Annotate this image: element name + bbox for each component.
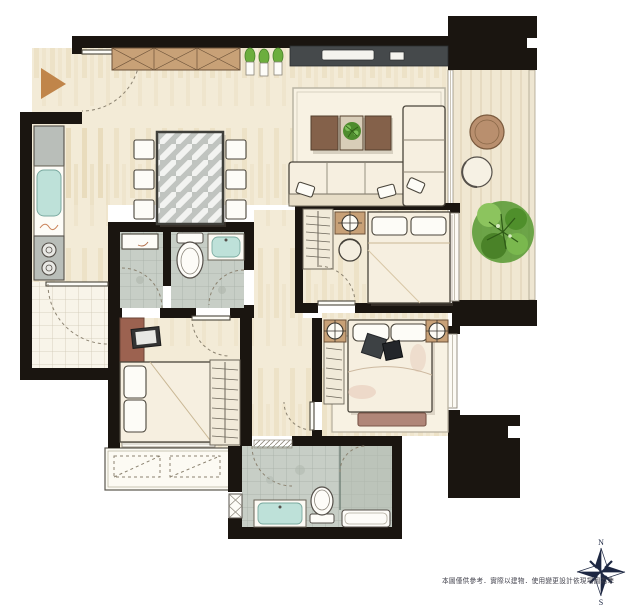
kitchen-tile-grid — [32, 282, 108, 368]
compass-south-label: S — [599, 598, 603, 607]
bedroom3-wardrobe — [210, 360, 240, 445]
entry-door-jamb — [72, 36, 82, 54]
balcony-plank-lines — [452, 70, 529, 300]
bedroom3-door-leaf — [192, 316, 230, 320]
wall-bath-right-upper — [244, 222, 254, 270]
wall-bath-bottom-a — [108, 308, 122, 318]
tile-mottle-3 — [295, 465, 305, 475]
master-door-leaf — [310, 402, 314, 430]
bedroom3-pillow-2 — [124, 400, 146, 432]
tile-mottle-4 — [266, 476, 274, 484]
wall-master-hall-a — [312, 318, 322, 402]
structural-column-bottom-right — [448, 415, 520, 498]
wall-bathroom-right — [392, 443, 402, 539]
faucet-dot — [225, 239, 228, 242]
floor-plan-page: N S 本圖僅供參考．實際以建物．使用變更設計依現場圖為準 — [0, 0, 640, 609]
living-room — [289, 88, 445, 206]
kitchen-sink — [37, 170, 61, 216]
bathroom2-counter — [122, 234, 158, 249]
compass-rose — [577, 548, 625, 596]
master-pillow-2 — [391, 324, 427, 341]
shower-zone — [340, 446, 392, 510]
wall-bottom — [228, 527, 402, 539]
floor-plan-canvas: N S 本圖僅供參考．實際以建物．使用變更設計依現場圖為準 — [0, 0, 640, 609]
wall-bath-divider — [163, 228, 171, 286]
bedroom2-stool — [339, 239, 361, 261]
bedroom2-wardrobe — [303, 209, 333, 269]
coffee-table-plant — [343, 122, 361, 140]
bath-threshold-hatch — [254, 440, 292, 448]
dining-table — [157, 132, 223, 224]
wall-mid-left-vertical — [108, 222, 120, 448]
outdoor-lounge-chair — [462, 157, 492, 187]
utility-balcony — [105, 448, 235, 490]
bedroom2-pillow-2 — [411, 217, 446, 235]
coffee-table — [311, 116, 393, 154]
bathroom1-toilet — [177, 233, 203, 278]
potted-plants — [245, 48, 283, 76]
compass-north-label: N — [598, 538, 604, 547]
cooktop — [34, 236, 64, 280]
tv-console — [290, 46, 448, 66]
balcony — [448, 70, 535, 300]
wall-bedroom2-bottom-a — [295, 303, 318, 313]
bedroom2-door-leaf — [318, 301, 355, 305]
wall-master-bottom-b — [292, 436, 402, 446]
wall-bath-right-lower — [244, 305, 254, 318]
wall-tv — [322, 50, 374, 60]
wall-bedroom2-left — [295, 203, 303, 303]
entry-shoe-cabinet — [112, 48, 240, 70]
dining-area — [134, 132, 246, 227]
chaise — [403, 106, 445, 206]
compass-center — [599, 570, 603, 574]
wall-central-vertical — [240, 318, 252, 446]
refrigerator — [34, 126, 64, 166]
wall-joint-1 — [450, 203, 460, 213]
bedroom3-tv — [131, 327, 161, 349]
tile-mottle-1 — [136, 276, 144, 284]
bed-shading-2 — [410, 344, 426, 372]
master-sink — [254, 500, 306, 527]
media-box — [390, 52, 404, 60]
wall-master-hall-b — [312, 430, 322, 446]
plant-pot-3 — [273, 48, 283, 75]
balcony-railing — [529, 70, 535, 300]
disclaimer-text: 本圖僅供參考．實際以建物．使用變更設計依現場圖為準 — [442, 576, 614, 585]
compass: N S — [577, 538, 625, 607]
bathroom1-sink — [208, 234, 244, 260]
plant-pot-1 — [245, 48, 255, 75]
throw-pillow-2 — [383, 340, 403, 360]
structural-column-mid-right — [452, 300, 537, 326]
bed-shading-1 — [348, 385, 376, 399]
plant-pot-2 — [259, 49, 269, 76]
louver-vent — [229, 494, 242, 518]
wall-joint-2 — [448, 326, 460, 334]
wall-bath-bottom-b — [160, 308, 196, 318]
wall-master-bottom-a — [242, 436, 252, 446]
bathtub — [342, 510, 390, 527]
structural-column-top-right — [448, 16, 537, 70]
bedroom2-pillow-1 — [372, 217, 407, 235]
master-foot-bench — [358, 413, 426, 426]
balcony-tree — [472, 201, 534, 263]
kitchen-door-leaf — [46, 282, 108, 286]
wall-left — [20, 112, 32, 380]
tile-mottle-2 — [218, 286, 226, 294]
master-wardrobe — [324, 342, 344, 404]
master-faucet-dot — [279, 506, 282, 509]
master-toilet — [310, 487, 334, 523]
wall-bathroom-left-a — [228, 446, 242, 492]
bedroom3-pillow-1 — [124, 366, 146, 398]
wall-kitchen-bottom — [20, 368, 120, 380]
